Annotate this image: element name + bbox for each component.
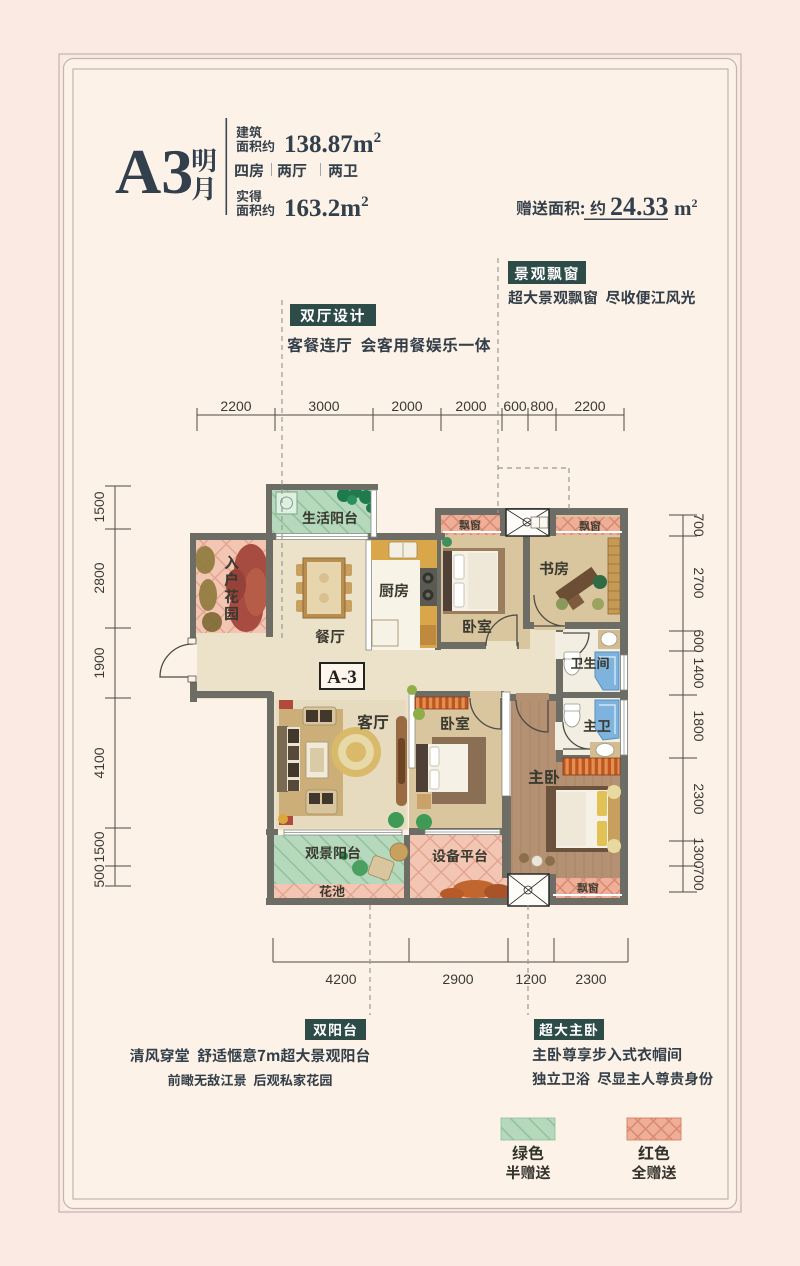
svg-text:700: 700 [691, 513, 707, 537]
svg-text:2800: 2800 [91, 562, 107, 593]
svg-text:24.33: 24.33 [610, 192, 669, 221]
svg-text:1900: 1900 [91, 647, 107, 678]
svg-text:1500: 1500 [91, 491, 107, 522]
svg-text:2300: 2300 [691, 783, 707, 814]
svg-text:1400: 1400 [691, 657, 707, 688]
svg-text:1800: 1800 [691, 710, 707, 741]
svg-text:4200: 4200 [325, 971, 356, 987]
svg-text:2200: 2200 [220, 398, 251, 414]
svg-text:1500: 1500 [91, 831, 107, 862]
svg-text:A-3: A-3 [327, 667, 357, 688]
svg-text:1300: 1300 [691, 837, 707, 868]
svg-text:1200: 1200 [515, 971, 546, 987]
svg-text:500: 500 [91, 864, 107, 888]
svg-text:2300: 2300 [575, 971, 606, 987]
svg-text:2000: 2000 [391, 398, 422, 414]
svg-text:2700: 2700 [691, 567, 707, 598]
svg-text:163.2m2: 163.2m2 [284, 194, 369, 222]
svg-text:2000: 2000 [455, 398, 486, 414]
svg-text:2900: 2900 [442, 971, 473, 987]
svg-text:138.87m2: 138.87m2 [284, 130, 381, 158]
svg-text:700: 700 [691, 867, 707, 891]
svg-text:4100: 4100 [91, 747, 107, 778]
svg-text:A3: A3 [115, 136, 193, 207]
svg-text:600: 600 [503, 398, 527, 414]
svg-text:3000: 3000 [308, 398, 339, 414]
svg-text:600: 600 [691, 629, 707, 653]
svg-text:800: 800 [530, 398, 554, 414]
svg-text:2200: 2200 [574, 398, 605, 414]
